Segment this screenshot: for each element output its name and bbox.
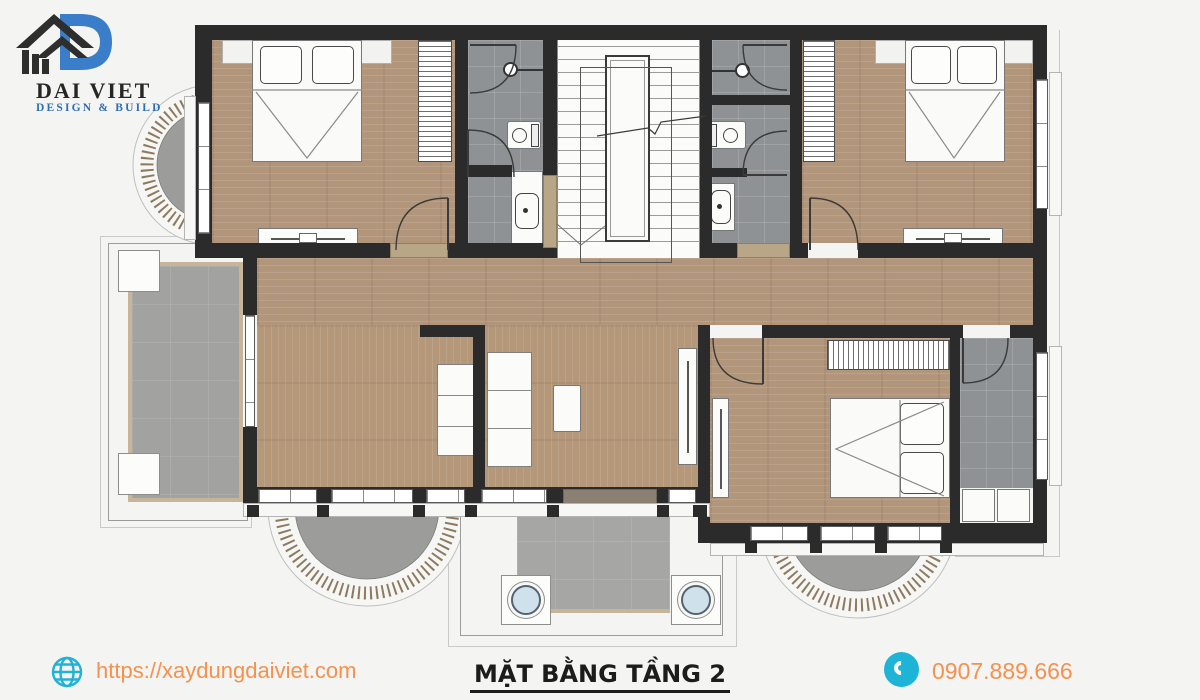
sofa-left bbox=[437, 364, 474, 456]
wall-br3-top-a bbox=[762, 325, 963, 338]
page: DAI VIET DESIGN & BUILD https://xaydungd… bbox=[0, 0, 1200, 700]
bottom-right-eave-line bbox=[955, 556, 1060, 557]
hallway-floor bbox=[257, 258, 1033, 325]
tv-console-living bbox=[678, 348, 697, 465]
bed-1-pillow-left bbox=[260, 46, 302, 84]
wall-bath2-br2 bbox=[790, 40, 802, 258]
coffee-table bbox=[553, 385, 581, 432]
post-tab-11 bbox=[940, 543, 952, 553]
sink-1-faucet bbox=[523, 208, 528, 213]
threshold-bedroom-1 bbox=[390, 243, 448, 258]
logo-house-icon bbox=[14, 6, 124, 76]
tv-1-base bbox=[299, 233, 317, 243]
wardrobe-1 bbox=[418, 40, 452, 162]
bath-3-cabinet-right bbox=[997, 489, 1030, 522]
wall-partition bbox=[473, 325, 485, 490]
sofa-right bbox=[487, 352, 532, 467]
bed-2-pillow-right bbox=[957, 46, 997, 84]
window-bath3-east bbox=[1036, 352, 1048, 480]
post-tab-4 bbox=[465, 505, 477, 517]
post-tab-10 bbox=[875, 543, 887, 553]
wardrobe-2 bbox=[803, 40, 835, 162]
brand-name: DAI VIET bbox=[36, 78, 186, 104]
wall-bath1-stub bbox=[455, 165, 512, 177]
post-tab-2 bbox=[317, 505, 329, 517]
sink-2-faucet bbox=[717, 204, 722, 209]
logo-chimney-1 bbox=[22, 50, 29, 74]
toilet-2-icon bbox=[706, 121, 746, 149]
wall-mid-c bbox=[712, 243, 737, 258]
bath-3-cabinet-left bbox=[962, 489, 995, 522]
balcony-round-bottomleft-deck bbox=[268, 507, 466, 606]
toilet-1-bowl bbox=[512, 128, 527, 143]
sill-bath3-east bbox=[1049, 346, 1062, 486]
shower-arm-1 bbox=[515, 69, 543, 71]
bed-3-pillow-bottom bbox=[900, 452, 944, 494]
window-br1-west bbox=[198, 102, 210, 234]
tv-console-3 bbox=[712, 398, 729, 498]
window-living-1 bbox=[258, 489, 317, 503]
terrace-column-left bbox=[511, 585, 541, 615]
window-br2-east bbox=[1036, 79, 1048, 209]
phone-icon bbox=[884, 652, 919, 687]
post-tab-9 bbox=[810, 543, 822, 553]
wall-mid-d bbox=[790, 243, 808, 258]
logo: DAI VIET DESIGN & BUILD bbox=[14, 6, 204, 116]
bed-3-pillow-top bbox=[900, 403, 944, 445]
wall-corridor bbox=[698, 325, 710, 523]
wall-mid-e bbox=[858, 243, 1047, 258]
wall-mid-a bbox=[195, 243, 390, 258]
stair-void-rail bbox=[580, 67, 672, 263]
shower-head-2-icon bbox=[735, 63, 750, 78]
sink-counter-1 bbox=[511, 171, 543, 249]
bathroom-3-floor bbox=[960, 338, 1033, 488]
balcony-round-bottomleft-balustrade bbox=[281, 507, 453, 593]
logo-chimney-2 bbox=[32, 54, 39, 74]
sill-br2-east bbox=[1049, 72, 1062, 216]
phone-number[interactable]: 0907.889.666 bbox=[932, 658, 1073, 685]
threshold-bedroom-2 bbox=[737, 243, 790, 258]
wall-br3-bath3 bbox=[950, 338, 960, 523]
wardrobe-3 bbox=[827, 340, 950, 370]
wall-bath2-stub-a bbox=[712, 95, 792, 105]
window-br3-1 bbox=[750, 526, 808, 541]
window-br3-2 bbox=[820, 526, 875, 541]
tv-2-base bbox=[944, 233, 962, 243]
sill-br1-west bbox=[184, 96, 196, 240]
tv-3 bbox=[720, 409, 722, 489]
post-tab-8 bbox=[745, 543, 757, 553]
brand-tagline: DESIGN & BUILD bbox=[36, 102, 216, 114]
wall-top bbox=[195, 25, 1047, 40]
logo-chimney-3 bbox=[42, 59, 49, 74]
balcony-round-bottomleft-floor bbox=[295, 507, 439, 579]
wall-stair-right bbox=[700, 38, 712, 258]
wall-mid-b bbox=[448, 243, 557, 258]
wall-br1-bath1 bbox=[455, 40, 468, 258]
bed-2-pillow-left bbox=[911, 46, 951, 84]
wall-bath2-stub-b bbox=[712, 168, 747, 177]
balcony-left-pillar-bottom bbox=[118, 453, 160, 495]
window-living-2 bbox=[331, 489, 413, 503]
toilet-1-tank bbox=[531, 124, 539, 147]
window-living-3 bbox=[426, 489, 465, 503]
post-tab-6 bbox=[657, 505, 669, 517]
window-br3-3 bbox=[887, 526, 942, 541]
balcony-sliding-door bbox=[245, 315, 255, 427]
window-living-4 bbox=[481, 489, 547, 503]
post-tab-7 bbox=[693, 505, 707, 517]
toilet-1-icon bbox=[507, 121, 541, 149]
window-living-5 bbox=[668, 489, 696, 503]
shower-head-1-icon bbox=[503, 62, 518, 77]
bed-1-pillow-right bbox=[312, 46, 354, 84]
logo-letter-d bbox=[66, 14, 112, 70]
balcony-left-pillar-top bbox=[118, 250, 160, 292]
toilet-2-bowl bbox=[723, 128, 738, 143]
threshold-bath-1 bbox=[543, 175, 557, 248]
post-tab-3 bbox=[413, 505, 425, 517]
tv-living bbox=[687, 361, 689, 453]
wall-br3-top-b bbox=[1010, 325, 1047, 338]
terrace-column-right bbox=[681, 585, 711, 615]
plan-title-text: MẶT BẰNG TẦNG 2 bbox=[470, 660, 730, 693]
post-tab-5 bbox=[547, 505, 559, 517]
phone-handset-glyph bbox=[891, 658, 911, 678]
post-tab-1 bbox=[247, 505, 259, 517]
wall-living-left-a bbox=[243, 258, 257, 315]
